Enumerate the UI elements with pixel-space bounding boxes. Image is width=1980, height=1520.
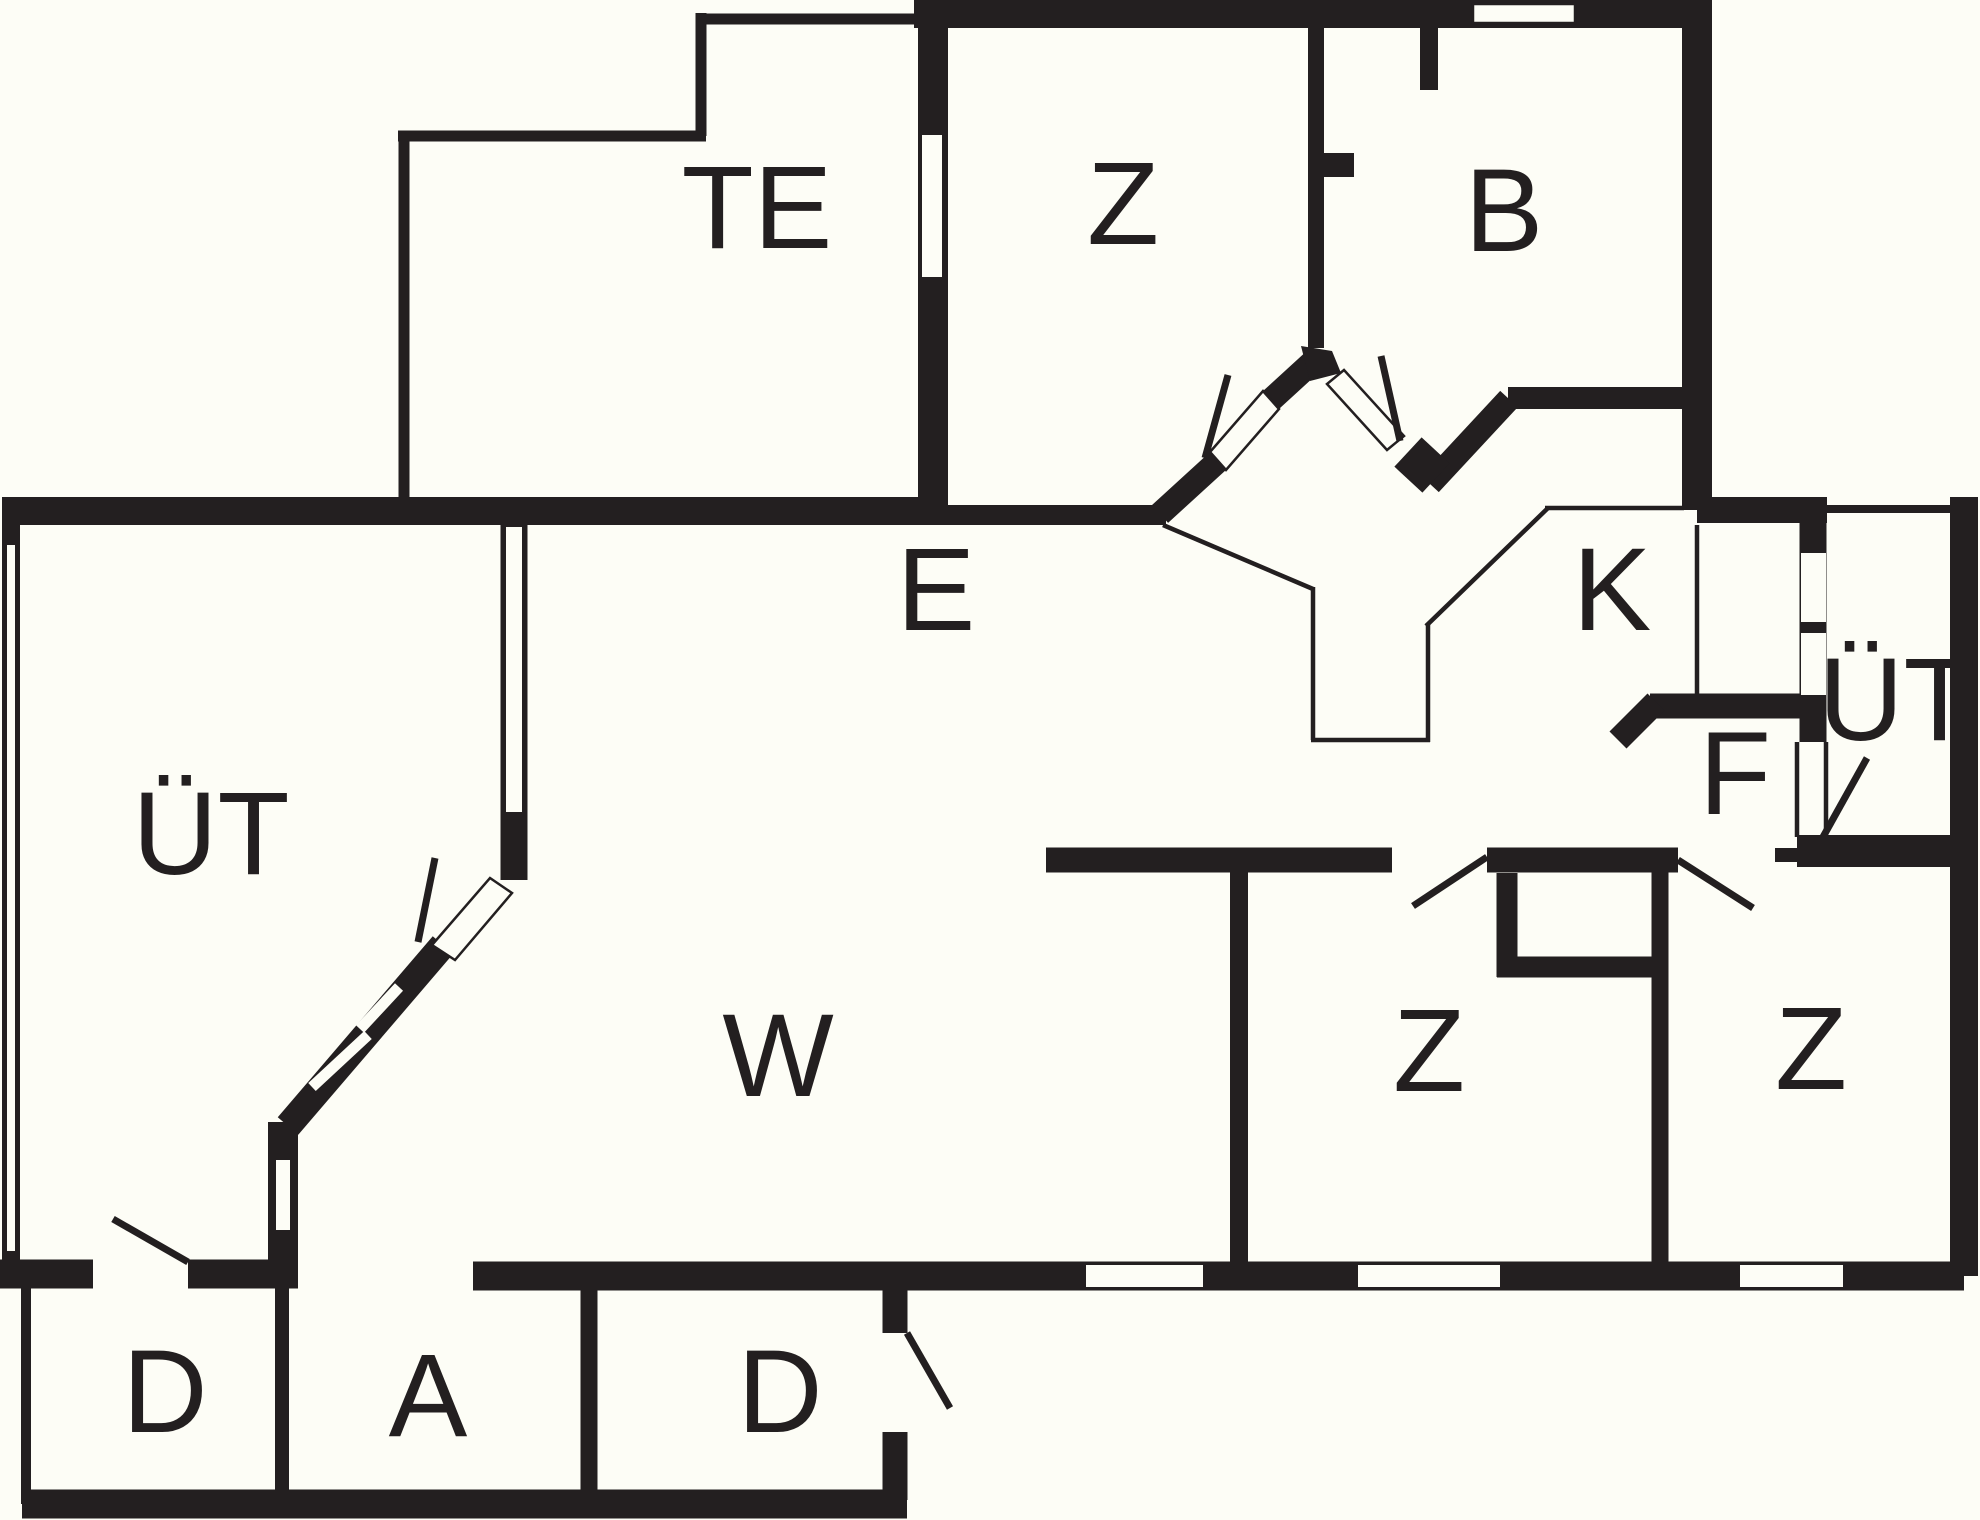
wall-door-post [1408,452,1436,478]
window-k-terrace-1 [1801,553,1826,622]
door-gap-ut-diagonal [432,878,512,960]
door-swing-d-left [113,1219,188,1262]
room-label-z-bottom-left: Z [1393,985,1465,1117]
room-label-te: TE [682,142,833,274]
room-label-z-bottom-right: Z [1775,983,1847,1115]
window-ut-left-band [7,545,15,1251]
wall-diagonal-a [1160,461,1218,514]
room-label-z-top: Z [1087,138,1159,270]
boundary-e-corridor [1163,525,1313,589]
exterior-walls [0,0,1964,1504]
window-ut-lower [276,1160,290,1230]
window-ut-partition [506,527,522,812]
window-south-1 [1086,1265,1203,1287]
room-label-e: E [897,524,976,656]
room-label-f: F [1699,708,1771,840]
room-label-b: B [1465,145,1544,277]
window-south-2 [1358,1265,1500,1287]
door-swing-entrance [907,1333,950,1408]
room-label-ut-right: ÜT [1818,634,1975,766]
room-label-ut-left: ÜT [132,768,289,900]
floor-plan-page: TEZBEKÜTÜTFWZZDAD [0,0,1980,1520]
room-label-d-right: D [737,1326,822,1458]
room-label-d-left: D [122,1326,207,1458]
door-swing-z-bottom-right [1678,860,1753,908]
wall-stub-b-left [1324,153,1354,177]
room-label-w: W [722,990,833,1122]
window-te-z-divider [922,135,942,277]
wall-k-bottom-diagonal [1618,702,1656,740]
room-label-k: K [1573,524,1652,656]
door-swing-z-bottom-left [1413,857,1487,906]
room-label-a: A [389,1330,468,1462]
window-south-3 [1740,1265,1843,1287]
door-swing-terrace-right [1823,758,1867,837]
door-swing-ut-diagonal [418,858,435,942]
window-top-wall [1473,4,1575,23]
boundary-k-diagonal [1426,508,1548,626]
floor-plan: TEZBEKÜTÜTFWZZDAD [0,0,1980,1520]
